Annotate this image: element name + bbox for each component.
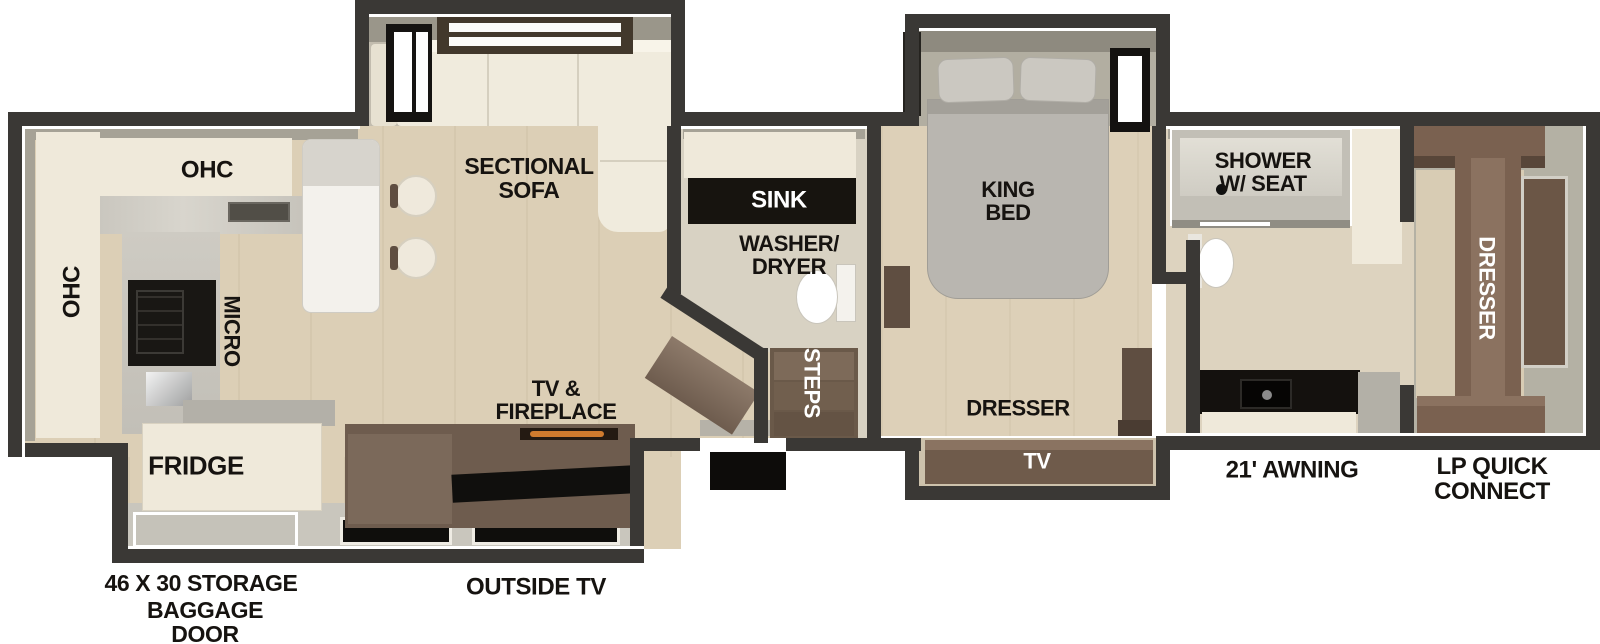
wall-bottom-front: [1156, 436, 1600, 450]
trim-bath-top: [681, 126, 867, 129]
wall-bed-slide-top: [905, 14, 1170, 28]
fridge-countertop: [183, 400, 335, 426]
label-baggage-door: BAGGAGE DOOR: [147, 598, 263, 644]
label-tvfp-line2: FIREPLACE: [495, 400, 616, 423]
linen-cabinet: [1352, 128, 1402, 264]
label-shower: SHOWER W/ SEAT: [1215, 149, 1312, 195]
wall-front-cap: [1586, 112, 1600, 450]
trim-kitchen-left: [22, 126, 25, 457]
shower-glass-highlight: [1200, 222, 1270, 226]
bedroom-corner-shelf-lower: [1118, 420, 1152, 436]
sofa-slide-window-pane-2: [416, 32, 428, 112]
trim-bed-slide: [919, 28, 1156, 31]
storage-bay: [133, 512, 298, 548]
wall-rear-left: [8, 112, 22, 457]
trim-living-bottom: [128, 546, 644, 549]
sofa-chaise-seam: [600, 160, 670, 162]
label-tvfp-line1: TV &: [495, 377, 616, 400]
label-washer-line1: WASHER/: [739, 232, 839, 255]
fireplace-flame: [530, 431, 604, 437]
label-sectional-line1: SECTIONAL: [464, 154, 593, 178]
label-sectional-sofa: SECTIONAL SOFA: [464, 154, 593, 202]
sofa-slide-window-pane-1: [394, 32, 412, 112]
label-washer-dryer: WASHER/ DRYER: [739, 232, 839, 278]
entry-step-outside: [710, 452, 786, 490]
label-micro: MICRO: [220, 295, 243, 366]
skylight-slit-2: [449, 37, 621, 46]
trim-frontbath-top: [1166, 126, 1400, 129]
trim-front-bottom: [1166, 433, 1586, 436]
wall-top-front: [1156, 112, 1600, 126]
wall-frontbath-closet-lower: [1400, 385, 1414, 445]
wall-bottom-entry-right: [786, 438, 921, 451]
bar-stool-2: [395, 237, 437, 279]
label-fridge: FRIDGE: [148, 452, 244, 479]
sofa-seam-1: [487, 46, 489, 126]
wall-bed-slide-right: [1156, 14, 1170, 126]
bar-stool-1: [395, 175, 437, 217]
wall-sofa-slide-left: [355, 0, 369, 126]
wall-bottom-step-up: [630, 438, 644, 563]
vanity-faucet: [1262, 390, 1272, 400]
label-outside-tv: OUTSIDE TV: [466, 574, 606, 599]
toilet-tank: [836, 264, 856, 322]
sofa-seam-2: [577, 46, 579, 126]
wall-living-bath-divider: [667, 126, 681, 294]
label-baggage-line2: DOOR: [147, 622, 263, 644]
pillow-2: [1019, 57, 1096, 104]
label-lp-line2: CONNECT: [1434, 479, 1550, 504]
label-kingbed-line2: BED: [981, 201, 1034, 224]
range-grate: [136, 290, 184, 354]
wall-dresser-slide-bottom: [905, 486, 1170, 500]
wall-bath-bedroom-divider: [867, 126, 881, 438]
bar-stool-2-back: [390, 246, 398, 270]
label-bedroom-tv: TV: [1023, 449, 1050, 472]
label-front-dresser: DRESSER: [1475, 236, 1498, 340]
wall-top-rear: [8, 112, 360, 126]
label-lp-connect: LP QUICK CONNECT: [1434, 454, 1550, 504]
bed-slide-window-right-pane: [1118, 56, 1142, 122]
island-countertop: [303, 140, 379, 186]
label-washer-line2: DRYER: [739, 255, 839, 278]
label-ohc-left: OHC: [59, 266, 84, 318]
wall-bottom-entry-left: [630, 438, 700, 451]
vanity-filler: [1358, 372, 1400, 436]
wall-lower-left: [112, 443, 128, 563]
wall-sofa-slide-right: [671, 0, 685, 126]
skylight-window: [437, 16, 633, 54]
label-shower-line2: W/ SEAT: [1215, 172, 1312, 195]
label-storage: 46 X 30 STORAGE: [105, 571, 298, 595]
bath-upper-cabinet: [684, 132, 856, 178]
label-shower-line1: SHOWER: [1215, 149, 1312, 172]
wall-bedroom-frontbath-upper: [1152, 126, 1166, 284]
trim-sofa-slide: [369, 14, 671, 17]
wall-top-mid: [672, 112, 919, 126]
label-awning: 21' AWNING: [1226, 457, 1359, 482]
floorplan: OHC OHC MICRO FRIDGE SECTIONAL SOFA SINK…: [0, 0, 1600, 644]
label-bedroom-dresser: DRESSER: [966, 396, 1070, 419]
bar-stool-1-back: [390, 184, 398, 208]
wall-frontbath-closet-upper: [1400, 126, 1414, 222]
label-king-bed: KING BED: [981, 178, 1034, 224]
label-steps: STEPS: [800, 348, 823, 418]
wall-sofa-slide-top: [355, 0, 685, 14]
sofa-chaise: [598, 100, 671, 232]
entertainment-cabinet-left: [348, 434, 452, 524]
closet-bottom-cabinet-top: [1417, 396, 1545, 406]
label-sink: SINK: [751, 187, 807, 212]
label-lp-line1: LP QUICK: [1434, 454, 1550, 479]
label-sectional-line2: SOFA: [464, 178, 593, 202]
label-ohc-top: OHC: [181, 157, 233, 182]
pillow-1: [937, 57, 1014, 104]
wall-bed-slide-left: [905, 14, 919, 126]
label-baggage-line1: BAGGAGE: [147, 598, 263, 622]
wall-bedroom-frontbath-lower: [1186, 240, 1200, 436]
skylight-slit-1: [449, 23, 621, 32]
wall-steps-left: [754, 348, 768, 443]
trim-closet-right: [1583, 126, 1586, 436]
front-toilet-bowl: [1198, 238, 1234, 288]
wall-bottom-rear: [112, 549, 644, 563]
bedroom-bench: [884, 266, 910, 328]
label-tv-fireplace: TV & FIREPLACE: [495, 377, 616, 423]
label-kingbed-line1: KING: [981, 178, 1034, 201]
wardrobe-mirror: [1521, 176, 1568, 368]
trim-kitchen-top: [22, 126, 360, 129]
wall-rear-bottom-step: [8, 443, 122, 457]
kitchen-sink: [228, 202, 290, 222]
kitchen-left-wallface: [24, 129, 35, 441]
closet-doorway-floor: [1400, 222, 1414, 385]
